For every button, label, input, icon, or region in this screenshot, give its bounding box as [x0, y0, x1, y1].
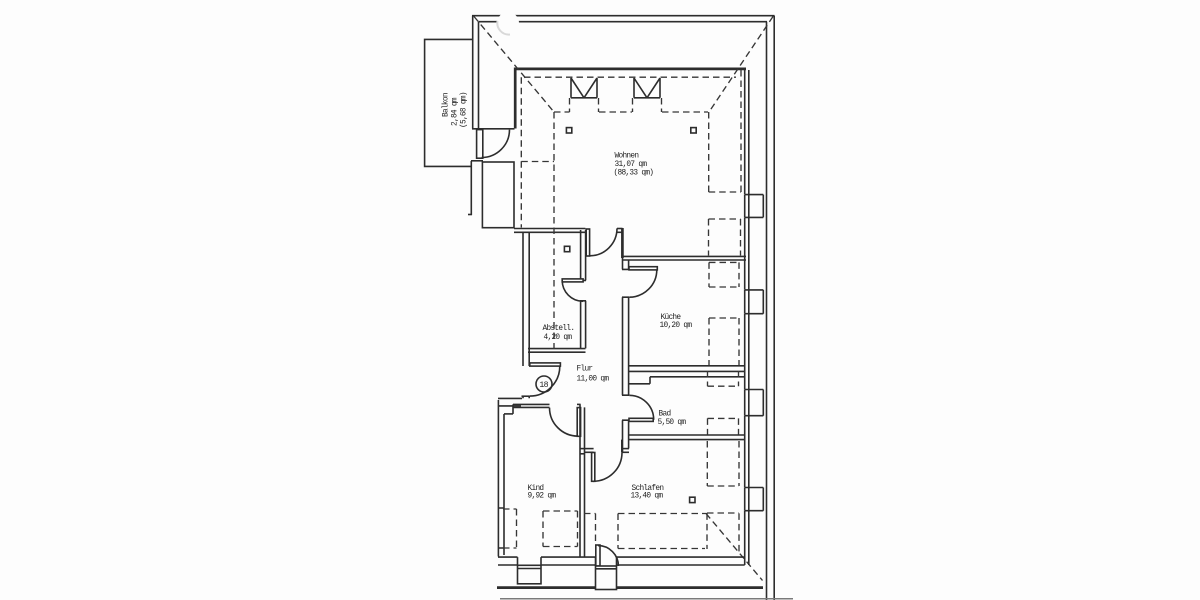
svg-text:9,92 qm: 9,92 qm — [528, 493, 557, 501]
svg-text:2,84 qm: 2,84 qm — [452, 97, 460, 126]
svg-text:11,00 qm: 11,00 qm — [577, 375, 610, 383]
svg-text:Bad: Bad — [659, 411, 671, 419]
svg-text:Abstell.: Abstell. — [543, 325, 575, 333]
svg-text:(88,33 qm): (88,33 qm) — [614, 170, 654, 178]
svg-text:18: 18 — [539, 381, 548, 390]
svg-text:10,20 qm: 10,20 qm — [660, 322, 693, 330]
svg-text:4,20 qm: 4,20 qm — [544, 334, 573, 342]
svg-text:(5,68 qm): (5,68 qm) — [461, 92, 469, 128]
svg-text:Flur: Flur — [577, 366, 593, 374]
svg-text:Küche: Küche — [661, 314, 682, 322]
svg-text:Wohnen: Wohnen — [615, 153, 639, 161]
svg-text:5,50 qm: 5,50 qm — [658, 419, 687, 427]
svg-text:13,40 qm: 13,40 qm — [631, 493, 664, 501]
svg-text:Balkon: Balkon — [443, 93, 451, 117]
svg-text:31,07 qm: 31,07 qm — [615, 161, 648, 169]
